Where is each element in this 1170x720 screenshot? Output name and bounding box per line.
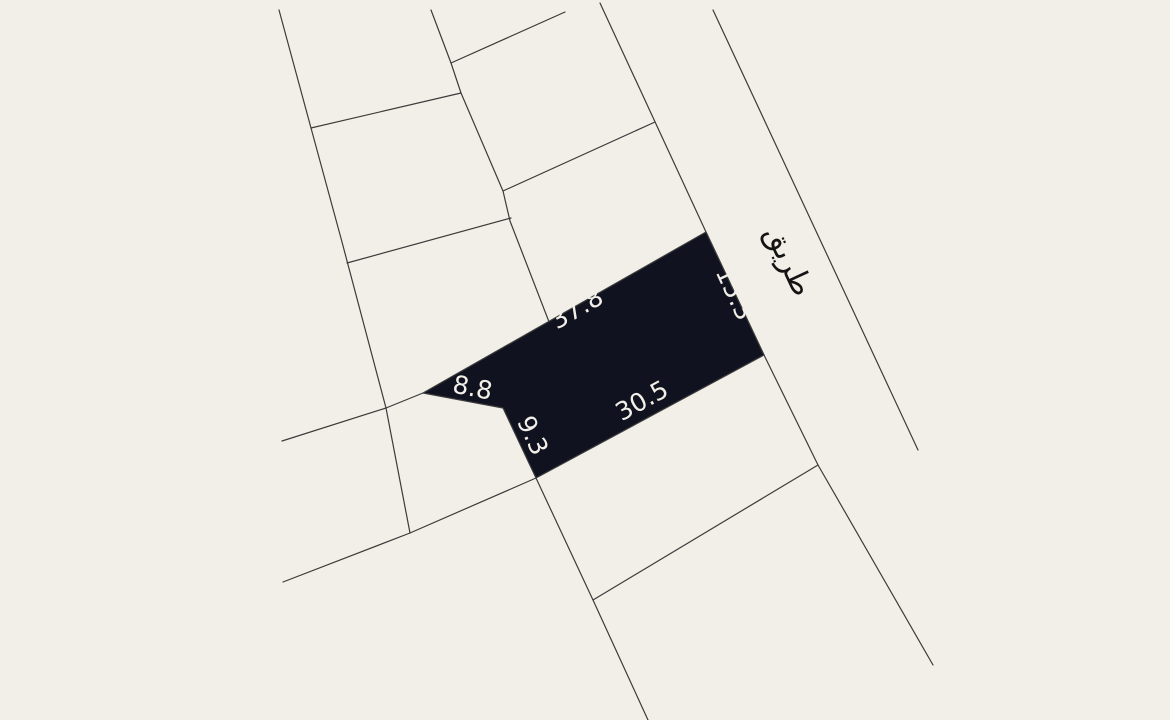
cadastral-map-canvas: 37.815.330.58.89.3طريق xyxy=(0,0,1170,720)
map-stage: 37.815.330.58.89.3طريق xyxy=(0,0,1170,720)
